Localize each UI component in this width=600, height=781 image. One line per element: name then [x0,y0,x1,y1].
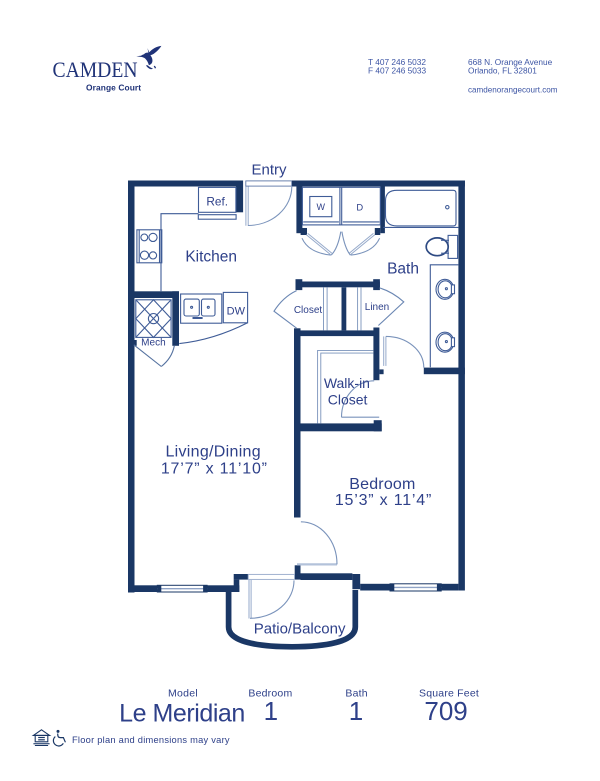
svg-text:Model: Model [168,687,198,699]
svg-text:1: 1 [349,696,363,726]
svg-text:Walk-in: Walk-in [324,375,370,391]
svg-text:D: D [356,201,363,212]
svg-text:Closet: Closet [328,391,368,407]
svg-text:F 407 246 5033: F 407 246 5033 [368,65,427,75]
svg-text:Living/Dining: Living/Dining [165,443,261,460]
svg-text:Bath: Bath [387,261,419,278]
svg-text:Orlando, FL 32801: Orlando, FL 32801 [468,65,537,75]
svg-text:Patio/Balcony: Patio/Balcony [254,621,346,638]
svg-text:Orange Court: Orange Court [86,83,141,93]
svg-text:Bedroom: Bedroom [349,476,415,493]
svg-text:15’3” x 11’4”: 15’3” x 11’4” [335,492,432,509]
svg-text:Kitchen: Kitchen [185,249,237,266]
svg-text:Entry: Entry [251,162,287,179]
svg-text:17’7” x 11’10”: 17’7” x 11’10” [161,461,268,478]
svg-text:Le Meridian: Le Meridian [119,700,245,728]
svg-text:1: 1 [264,696,278,726]
svg-text:CAMDEN: CAMDEN [53,57,138,82]
svg-text:Linen: Linen [365,302,389,313]
svg-text:Closet: Closet [294,305,323,316]
svg-text:Floor plan and dimensions may: Floor plan and dimensions may vary [72,735,230,745]
svg-text:W: W [317,202,326,212]
svg-text:camdenorangecourt.com: camdenorangecourt.com [468,86,558,95]
svg-text:Ref.: Ref. [206,194,228,208]
svg-text:DW: DW [227,306,246,318]
svg-text:709: 709 [424,696,467,726]
svg-text:Mech: Mech [141,338,165,349]
